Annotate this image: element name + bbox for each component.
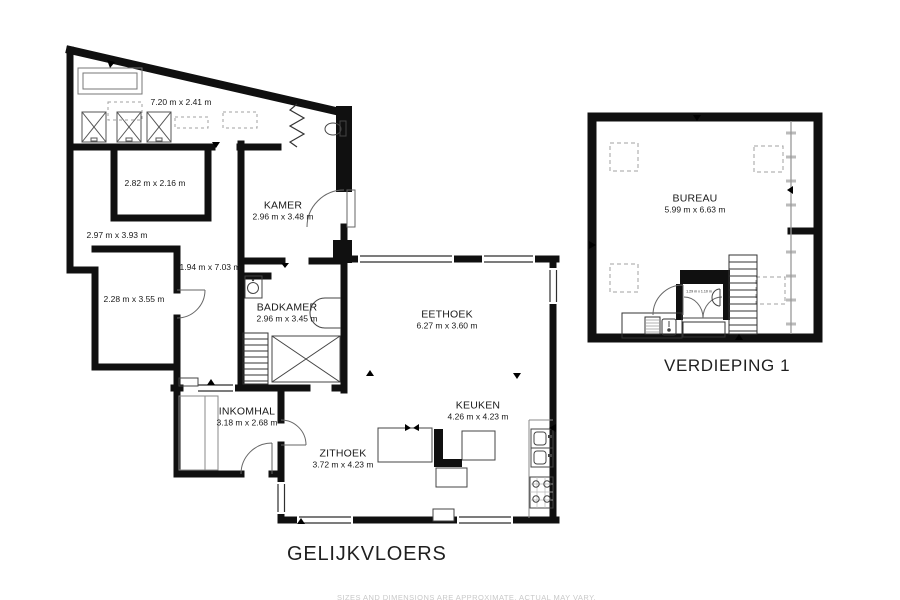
ff-toilet-room [676,270,730,320]
disclaimer-note: SIZES AND DIMENSIONS ARE APPROXIMATE, AC… [337,593,596,600]
floorplan-page: 7.20 m x 2.41 m 2.82 m x 2.16 m 2.97 m x… [0,0,900,600]
gf-doors [177,190,355,474]
wall-vent [433,509,454,521]
room-label-keuken: KEUKEN 4.26 m x 4.23 m [448,400,509,423]
first-floor-title: VERDIEPING 1 [664,356,790,376]
kitchen-counter [529,420,553,518]
ff-walls [592,117,818,338]
radiator-zigzag [290,104,304,147]
kamer-exterior-door-leaf [347,190,355,227]
toilet-double-door-swing [684,297,722,318]
hall-closet [179,396,218,470]
ff-direction-ticks [589,115,793,340]
storage-room-door [177,290,205,318]
kitchen-island [378,428,495,487]
room-label-storage-228: 2.28 m x 3.55 m [104,295,165,305]
room-label-inkomhal: INKOMHAL 3.18 m x 2.68 m [217,406,278,429]
room-label-badkamer: BADKAMER 2.96 m x 3.45 m [257,302,318,325]
room-label-attic-storage: 7.20 m x 2.41 m [151,98,212,108]
room-label-space-297: 2.97 m x 3.93 m [87,231,148,241]
staircase-first-floor [729,255,757,334]
hall-to-living-door-swing [281,420,306,445]
wardrobe-closets [82,112,171,142]
shower [272,336,340,382]
entrance-door-swing [241,443,272,474]
room-label-eethoek: EETHOEK 6.27 m x 3.60 m [417,309,478,332]
room-label-bureau: BUREAU 5.99 m x 6.63 m [665,193,726,216]
ground-floor-title: GELIJKVLOERS [287,543,447,566]
room-label-toilet-tiny: 1.29 m x 1.10 m [686,290,712,294]
room-label-zithoek: ZITHOEK 3.72 m x 4.23 m [313,448,374,471]
staircase-ground [243,333,268,384]
first-floor-plan [589,115,818,340]
room-label-storage-282: 2.82 m x 2.16 m [125,179,186,189]
room-label-kamer: KAMER 2.96 m x 3.48 m [253,200,314,223]
roof-window-outline [78,68,142,94]
room-label-corridor: 1.94 m x 7.03 m [180,263,241,273]
